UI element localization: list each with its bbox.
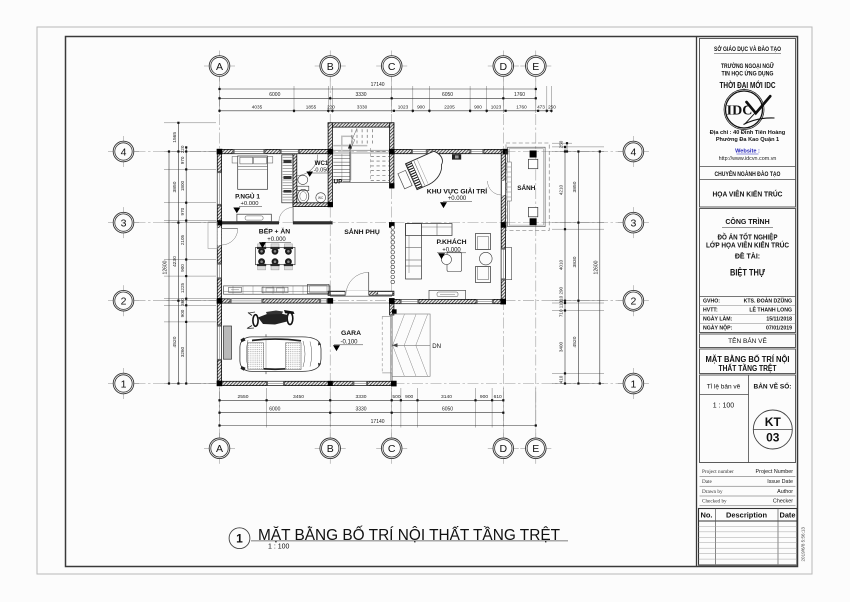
svg-text:12600: 12600 [593,260,599,274]
svg-text:710 110: 710 110 [559,300,564,317]
svg-text:C: C [388,443,396,455]
svg-text:1: 1 [121,378,127,390]
svg-text:4: 4 [121,146,127,158]
svg-text:3260: 3260 [180,346,185,357]
svg-text:Project Number: Project Number [756,469,794,475]
svg-text:LÊ THANH LONG: LÊ THANH LONG [749,305,792,313]
svg-text:WC: WC [318,196,324,200]
svg-text:P.NGỦ 1: P.NGỦ 1 [235,191,260,200]
svg-text:3330: 3330 [355,406,366,412]
svg-text:6050: 6050 [442,92,453,98]
svg-text:GARA: GARA [341,330,361,337]
svg-text:3330: 3330 [356,394,367,400]
svg-text:610: 610 [494,394,502,400]
svg-text:4520: 4520 [172,336,178,347]
svg-text:220: 220 [180,145,185,153]
svg-text:2: 2 [121,296,127,308]
svg-text:12600: 12600 [163,260,169,274]
svg-text:P.KHÁCH: P.KHÁCH [436,237,466,246]
svg-text:B: B [327,443,334,455]
svg-text:C: C [388,61,396,73]
svg-text:1 : 100: 1 : 100 [268,544,290,551]
svg-text:473: 473 [537,104,545,109]
svg-text:1023: 1023 [398,104,409,109]
svg-text:Author: Author [777,489,793,495]
svg-text:E: E [532,443,539,455]
svg-text:3330: 3330 [355,92,366,98]
svg-text:CÔNG TRÌNH: CÔNG TRÌNH [725,217,769,226]
svg-text:03: 03 [766,431,780,445]
svg-text:17140: 17140 [371,419,385,425]
svg-text:Date: Date [702,479,712,485]
svg-text:4230: 4230 [172,256,178,267]
svg-text:250: 250 [559,140,564,148]
svg-text:15/11/2018: 15/11/2018 [766,316,792,322]
svg-text:900: 900 [417,104,425,109]
svg-text:900: 900 [180,264,185,272]
svg-text:900: 900 [405,394,413,400]
svg-text:500: 500 [392,394,400,400]
svg-text:3830: 3830 [572,256,578,267]
svg-text:1: 1 [630,378,636,390]
svg-text:http://www.idcvn.com.vn: http://www.idcvn.com.vn [719,156,777,162]
svg-text:SỞ GIÁO DỤC VÀ ĐÀO TẠO: SỞ GIÁO DỤC VÀ ĐÀO TẠO [714,46,781,53]
svg-text:3400: 3400 [559,341,564,352]
svg-text:Project number: Project number [702,469,734,475]
svg-text:+0.000: +0.000 [442,247,461,253]
svg-text:07/01/2019: 07/01/2019 [766,325,792,331]
svg-text:D: D [500,61,508,73]
svg-text:250: 250 [548,104,556,109]
svg-text:1760: 1760 [514,92,525,98]
svg-text:6050: 6050 [442,406,453,412]
svg-text:3140: 3140 [441,394,452,400]
svg-text:THỜI ĐẠI MỚI IDC: THỜI ĐẠI MỚI IDC [720,81,776,90]
svg-text:110 290: 110 290 [559,286,564,303]
svg-text:Website :: Website : [735,149,760,155]
svg-text:HỌA VIÊN KIẾN TRÚC: HỌA VIÊN KIẾN TRÚC [713,189,784,199]
svg-text:2105: 2105 [180,234,185,245]
svg-text:3850: 3850 [172,181,178,192]
svg-text:Issue Date: Issue Date [767,479,793,485]
svg-text:4520: 4520 [572,336,578,347]
svg-text:KTS. ĐOÀN DZŨNG: KTS. ĐOÀN DZŨNG [744,297,792,304]
svg-text:1760: 1760 [516,104,527,109]
svg-text:970: 970 [180,156,185,164]
svg-text:KT: KT [765,415,782,429]
svg-text:Date: Date [780,511,796,520]
svg-text:+0.000: +0.000 [448,196,467,202]
svg-text:Địa chỉ : 40 Đinh Tiên Hoàng: Địa chỉ : 40 Đinh Tiên Hoàng [710,130,786,136]
svg-text:4210: 4210 [559,184,564,195]
svg-text:1565: 1565 [172,132,178,143]
svg-text:D: D [500,443,508,455]
svg-text:17140: 17140 [371,82,385,88]
svg-text:-0.100: -0.100 [340,339,358,345]
svg-text:900: 900 [180,309,185,317]
svg-text:No.: No. [701,511,713,520]
svg-text:NGÀY LÀM:: NGÀY LÀM: [703,315,733,322]
svg-text:KHU VỰC GIẢI TRÍ: KHU VỰC GIẢI TRÍ [427,186,489,195]
svg-text:E: E [532,61,539,73]
svg-text:3450: 3450 [293,394,304,400]
svg-text:410: 410 [559,375,564,383]
svg-text:360: 360 [180,298,185,306]
svg-text:900: 900 [480,394,488,400]
svg-text:3: 3 [121,217,127,229]
svg-text:220: 220 [327,104,335,109]
svg-text:SẢNH: SẢNH [517,183,535,192]
svg-text:+0.000: +0.000 [241,201,259,207]
svg-text:THẤT TẦNG TRỆT: THẤT TẦNG TRỆT [719,362,778,373]
svg-text:UP: UP [334,179,344,186]
svg-text:WC1: WC1 [315,160,329,167]
svg-text:4: 4 [630,146,636,158]
svg-text:-0.050: -0.050 [314,168,330,174]
svg-text:Description: Description [726,511,767,520]
svg-text:1855: 1855 [306,104,317,109]
svg-text:SẢNH PHỤ: SẢNH PHỤ [344,227,380,236]
svg-text:+0.000: +0.000 [267,237,286,243]
svg-text:2019/6/8 5:56:13: 2019/6/8 5:56:13 [801,527,806,562]
svg-text:GVHO:: GVHO: [703,298,720,304]
svg-text:1023: 1023 [491,104,502,109]
svg-text:2205: 2205 [444,104,455,109]
svg-text:1225: 1225 [180,282,185,293]
svg-text:TIN HỌC ỨNG DỤNG: TIN HỌC ỨNG DỤNG [722,69,774,78]
svg-text:6000: 6000 [269,406,280,412]
svg-text:900: 900 [474,104,482,109]
svg-text:A: A [216,61,223,73]
svg-text:DN: DN [432,343,441,350]
svg-text:6000: 6000 [269,92,280,98]
svg-text:Tỉ lệ bản vẽ: Tỉ lệ bản vẽ [707,383,741,391]
svg-text:HVTT:: HVTT: [703,307,718,313]
svg-text:1800: 1800 [180,180,185,191]
svg-text:2: 2 [630,296,636,308]
svg-text:TRƯỜNG NGOẠI NGỮ: TRƯỜNG NGOẠI NGỮ [721,61,775,70]
svg-text:Checker: Checker [773,499,793,505]
svg-text:Drawn by: Drawn by [702,489,723,495]
svg-text:970: 970 [180,207,185,215]
svg-text:NGÀY NỘP:: NGÀY NỘP: [703,323,733,331]
svg-text:TÊN BẢN VẼ: TÊN BẢN VẼ [728,336,767,345]
svg-text:3: 3 [630,217,636,229]
svg-text:Checked by: Checked by [702,499,727,505]
svg-text:1: 1 [236,532,243,546]
svg-text:Phường Đa Kao Quận 1: Phường Đa Kao Quận 1 [716,137,779,143]
svg-text:4010: 4010 [559,259,564,270]
svg-text:2550: 2550 [238,394,249,400]
svg-text:CHUYÊN NGÀNH ĐÀO TẠO: CHUYÊN NGÀNH ĐÀO TẠO [715,170,781,178]
svg-text:B: B [327,61,334,73]
svg-text:3850: 3850 [572,181,578,192]
svg-text:BIỆT THỰ: BIỆT THỰ [730,267,765,278]
svg-text:A: A [216,443,223,455]
svg-text:3330: 3330 [357,104,368,109]
svg-text:4035: 4035 [252,104,263,109]
svg-text:1 : 100: 1 : 100 [713,403,735,410]
